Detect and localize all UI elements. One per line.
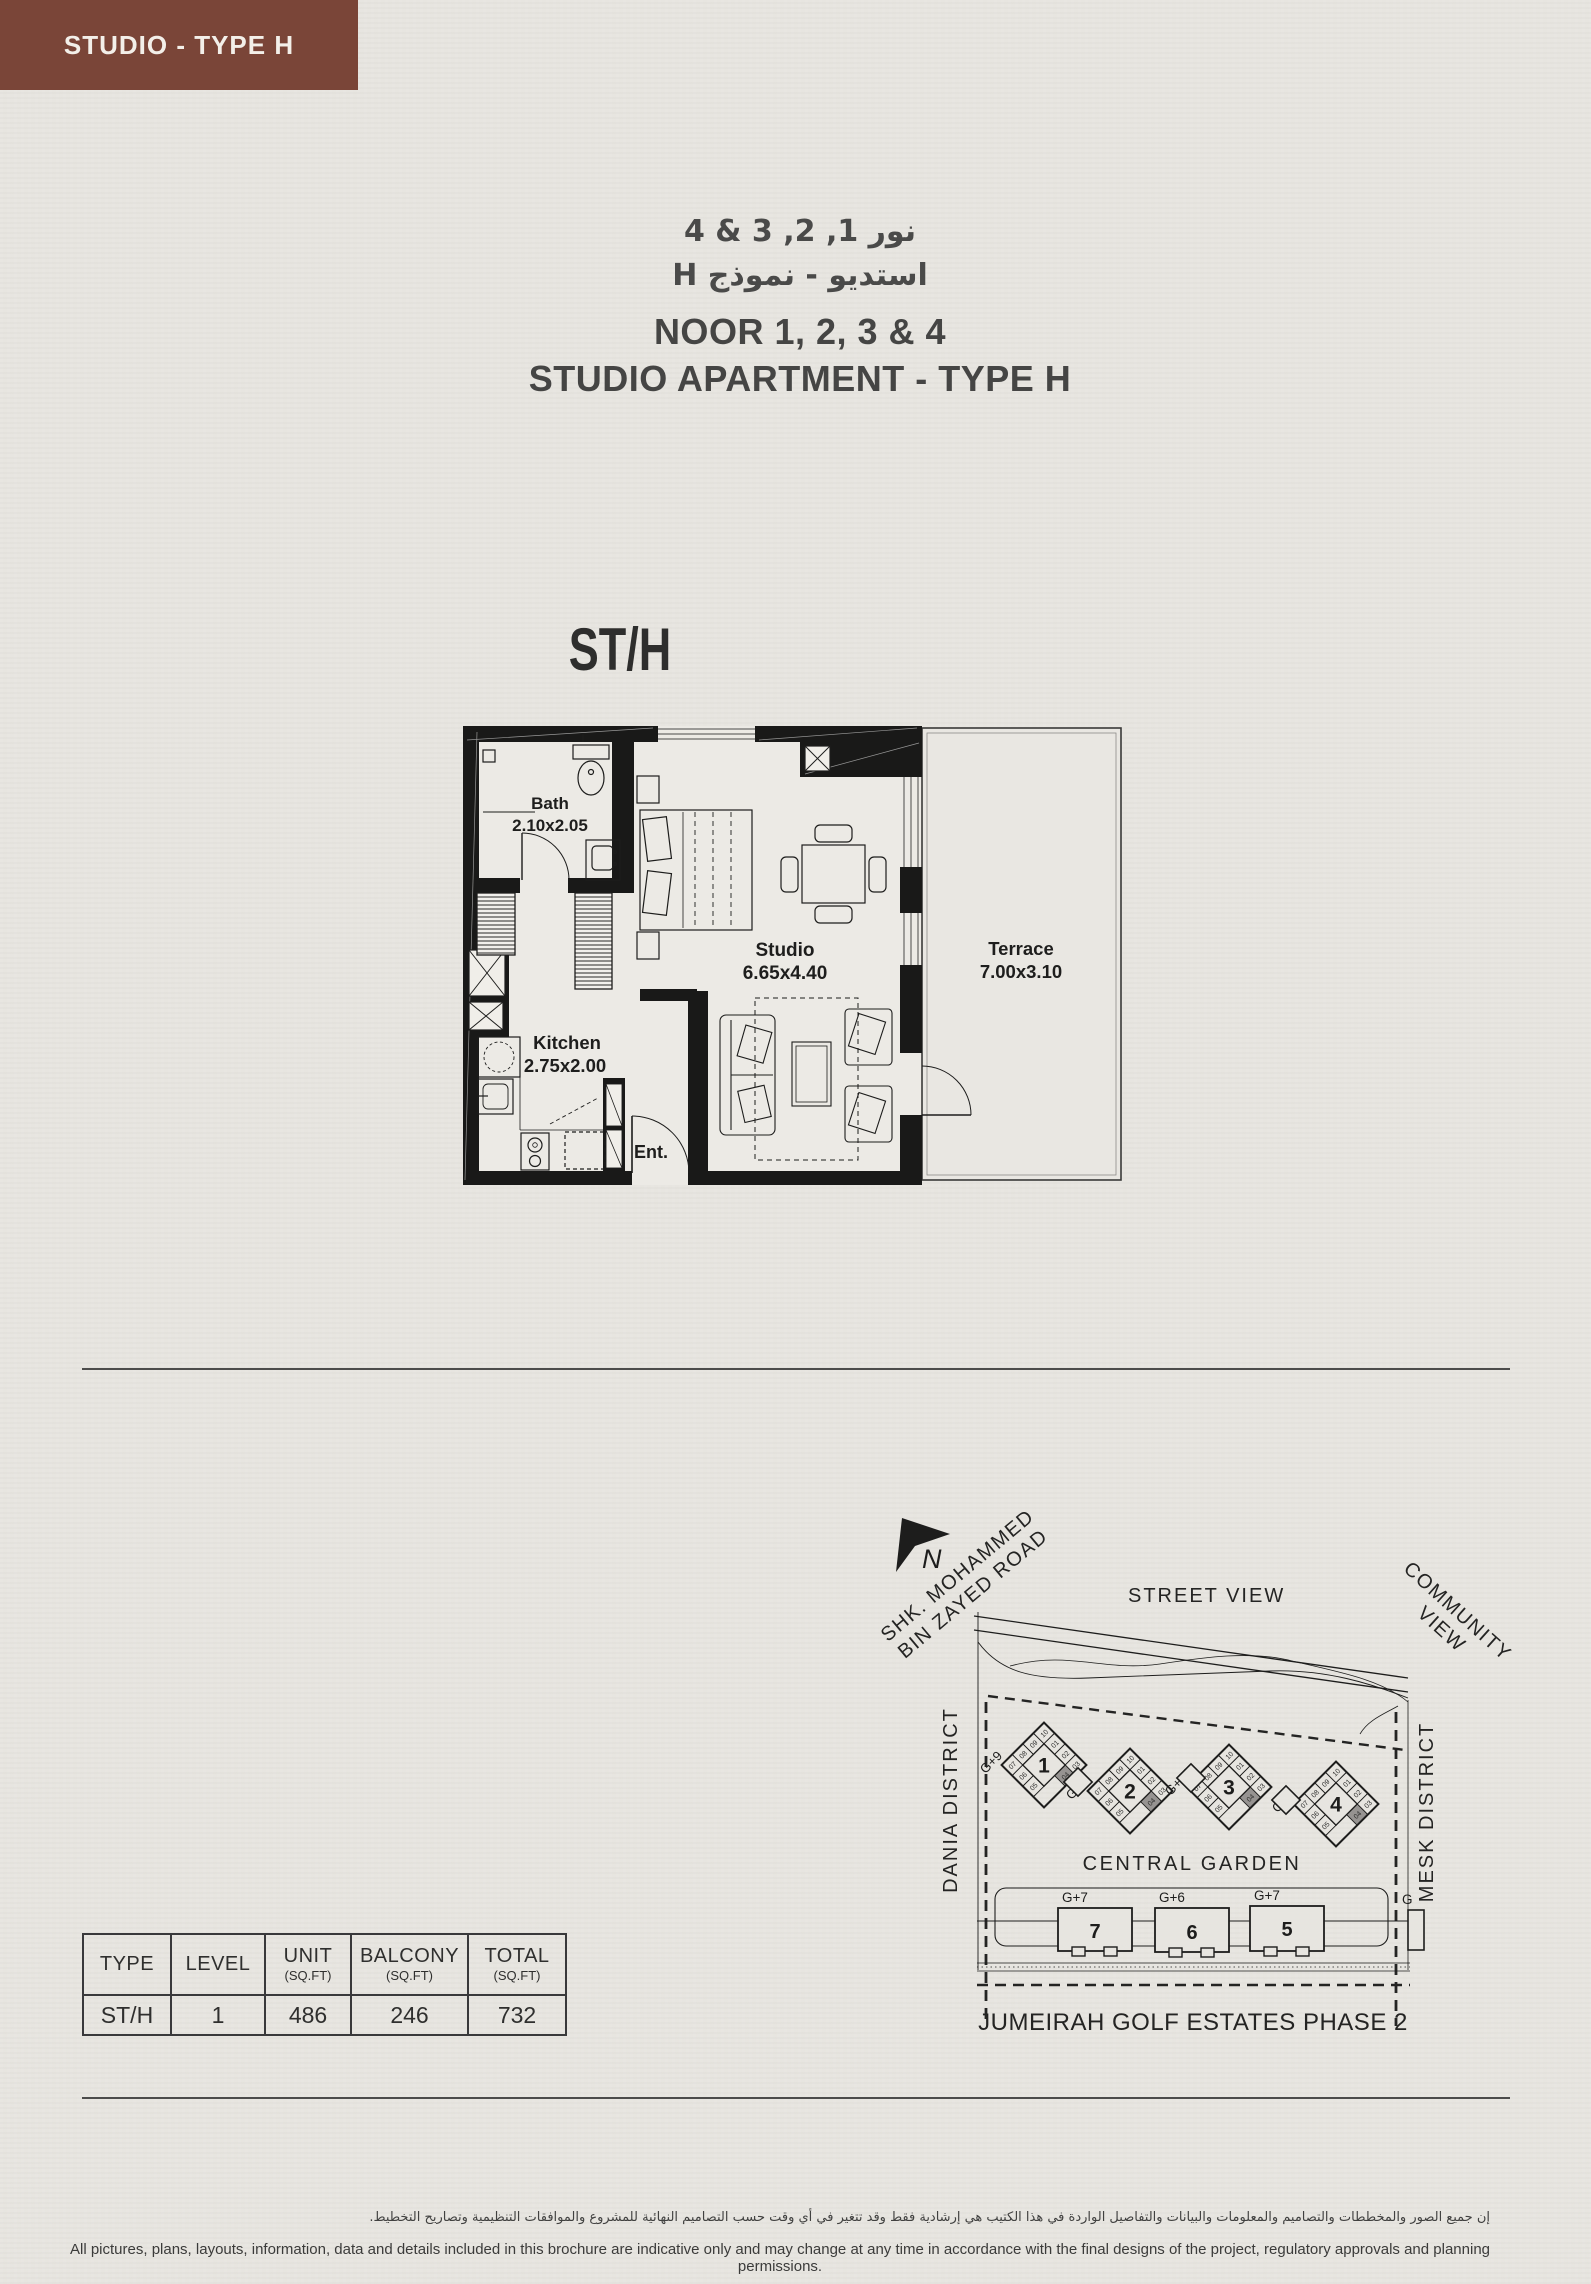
tower-buildings: 070809100102060503041G+90708091001020605… [977,1711,1379,1860]
unit-code-label: ST/H [530,615,710,684]
studio-dims: 6.65x4.40 [743,963,828,984]
tower-number: 4 [1330,1794,1342,1817]
estate-label: JUMEIRAH GOLF ESTATES PHASE 2 [978,2009,1408,2036]
kitchen-dims: 2.75x2.00 [524,1055,606,1076]
lowrise-building: G+6 6 [1155,1890,1229,1957]
tower-3: 070809100102060503043G+16 [1162,1733,1272,1843]
table-header-balcony: BALCONY (SQ.FT) [350,1935,467,1994]
tower-1: 070809100102060503041G+9 [977,1711,1087,1821]
lowrise-floors: G+7 [1254,1888,1280,1903]
tower-number: 1 [1038,1755,1050,1778]
title-english-line1: NOOR 1, 2, 3 & 4 [400,309,1200,356]
title-english-line2: STUDIO APARTMENT - TYPE H [400,356,1200,403]
community-view-label: COMMUNITY VIEW [1383,1558,1515,1684]
entrance-label: Ent. [634,1142,668,1162]
terrace-label: Terrace [988,938,1053,959]
disclaimer-arabic: إن جميع الصور والمخططات والتصاميم والمعل… [90,2210,1490,2225]
section-divider-bottom [82,2097,1510,2099]
north-arrow-icon: N [896,1518,950,1574]
tower-floors-label: G+9 [977,1748,1005,1776]
mesk-district-label: MESK DISTRICT [1416,1722,1438,1902]
brochure-page: { "page": { "background": "#e7e5e0", "ac… [0,0,1591,2284]
area-table: TYPE LEVEL UNIT (SQ.FT) BALCONY (SQ.FT) … [82,1933,567,2036]
section-divider-top [82,1368,1510,1370]
table-cell-unit: 486 [264,1994,350,2034]
title-arabic-line1: نور 1, 2, 3 & 4 [400,210,1200,254]
lowrise-floors: G+6 [1159,1890,1185,1905]
table-header-total: TOTAL (SQ.FT) [467,1935,565,1994]
tower-number: 2 [1124,1781,1136,1804]
table-header-unit: UNIT (SQ.FT) [264,1935,350,1994]
disclaimer-english: All pictures, plans, layouts, informatio… [60,2241,1500,2275]
lowrise-number: 5 [1281,1919,1292,1941]
dania-district-label: DANIA DISTRICT [940,1707,962,1893]
type-badge-label: STUDIO - TYPE H [64,30,294,61]
lowrise-floors-partial: G [1402,1892,1413,1907]
bath-dims: 2.10x2.05 [512,816,588,835]
lowrise-floors: G+7 [1062,1890,1088,1905]
site-map: N 070809100102060503041G+907080910010206… [860,1500,1560,2060]
floor-plan: Bath 2.10x2.05 Kitchen 2.75x2.00 Studio … [455,712,1145,1197]
studio-label: Studio [755,940,814,961]
title-arabic-line2: استديو - نموذج H [400,254,1200,298]
title-block: نور 1, 2, 3 & 4 استديو - نموذج H NOOR 1,… [400,210,1200,403]
central-garden-label: CENTRAL GARDEN [1083,1853,1302,1875]
street-view-label: STREET VIEW [1128,1585,1285,1607]
bath-label: Bath [531,794,569,813]
lowrise-buildings: G+7 7 G+6 6 G+7 5 G [1058,1888,1424,1957]
table-header-type: TYPE [84,1935,170,1994]
lowrise-number: 7 [1089,1921,1100,1943]
type-badge: STUDIO - TYPE H [0,0,358,90]
table-cell-balcony: 246 [350,1994,467,2034]
table-cell-type: ST/H [84,1994,170,2034]
tower-number: 3 [1223,1777,1235,1800]
north-label: N [922,1544,942,1574]
terrace-dims: 7.00x3.10 [980,961,1062,982]
table-header-level: LEVEL [170,1935,264,1994]
lowrise-building: G+7 5 [1250,1888,1324,1956]
kitchen-label: Kitchen [533,1032,601,1053]
entry-closet [606,1084,622,1168]
lowrise-number: 6 [1186,1922,1197,1944]
lowrise-building: G+7 7 [1058,1890,1132,1956]
table-cell-level: 1 [170,1994,264,2034]
table-cell-total: 732 [467,1994,565,2034]
